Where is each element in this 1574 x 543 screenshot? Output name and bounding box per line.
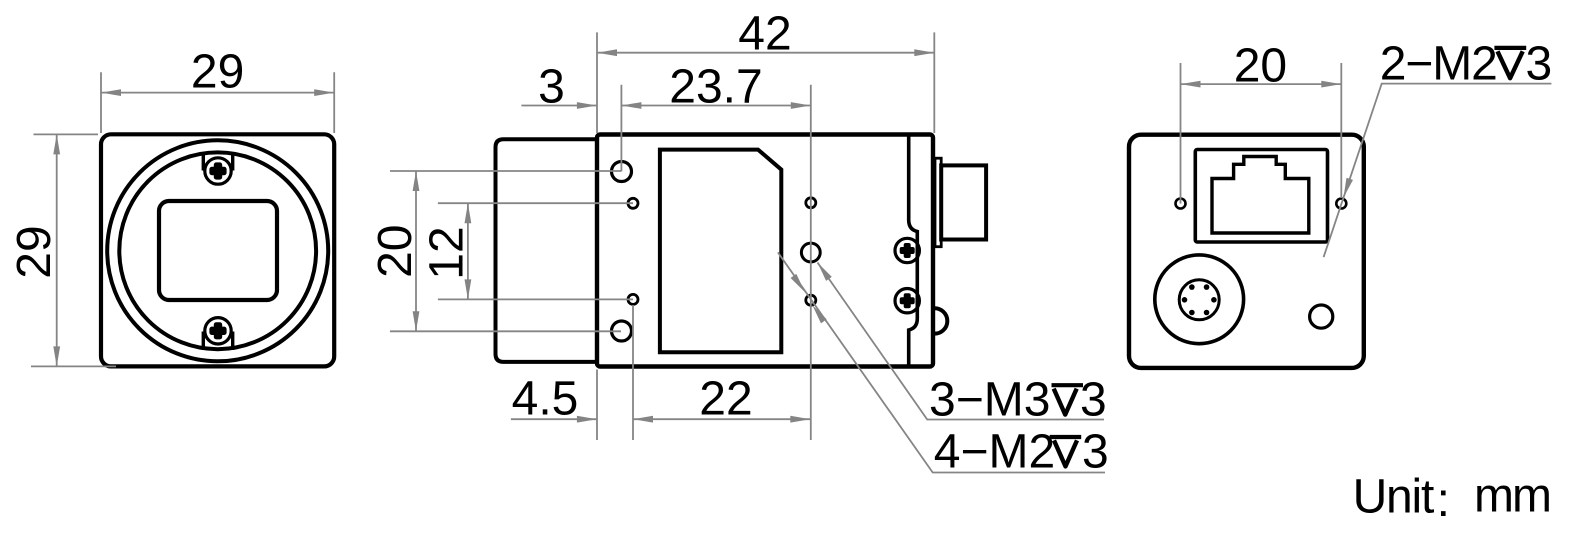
svg-text:29: 29 [8,225,61,278]
svg-text:20: 20 [369,225,422,278]
svg-text:mm: mm [1474,470,1550,523]
svg-text:22: 22 [699,373,752,426]
svg-text:3: 3 [538,61,565,114]
svg-text::: : [1437,474,1450,527]
svg-text:4.5: 4.5 [512,373,579,426]
svg-text:3: 3 [1526,38,1553,91]
svg-text:29: 29 [191,46,244,99]
svg-text:2−M2: 2−M2 [1380,38,1497,91]
svg-text:12: 12 [421,226,474,279]
svg-text:20: 20 [1234,39,1287,92]
svg-text:3−M3: 3−M3 [929,374,1050,427]
svg-text:4−M2: 4−M2 [934,426,1055,479]
svg-text:3: 3 [1080,374,1107,427]
svg-text:Unit: Unit [1353,470,1434,523]
svg-text:3: 3 [1082,426,1109,479]
svg-text:23.7: 23.7 [669,61,762,114]
svg-text:42: 42 [738,7,791,60]
